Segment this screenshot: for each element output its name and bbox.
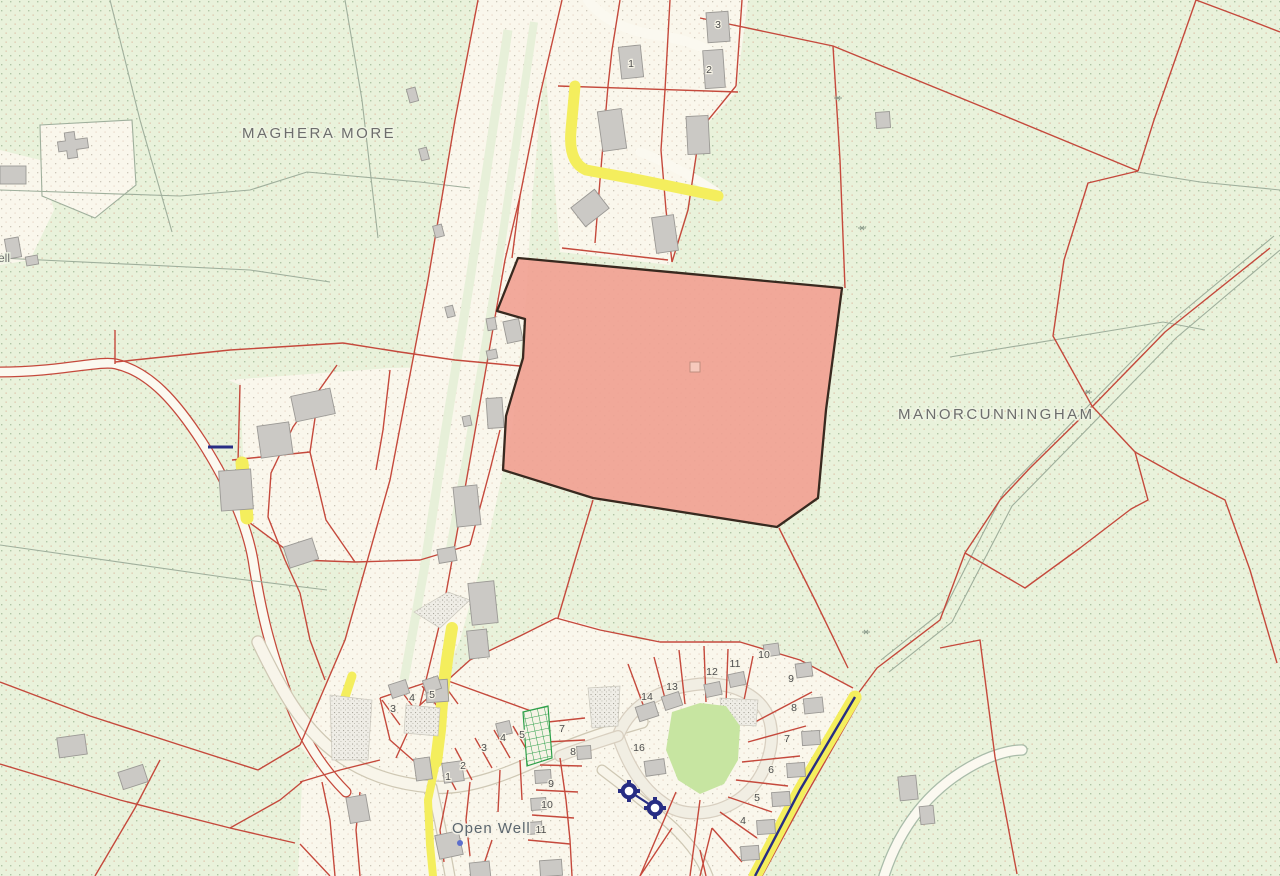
- building: [0, 166, 26, 184]
- building: [875, 112, 890, 129]
- building: [772, 791, 791, 806]
- plot-number: 2: [460, 760, 466, 772]
- well-dot-icon: [457, 840, 463, 846]
- plot-number: 16: [633, 742, 645, 754]
- building: [728, 671, 746, 687]
- map-canvas[interactable]: MAGHERA MORE MANORCUNNINGHAM Open Well e…: [0, 0, 1280, 876]
- plot-number: 4: [409, 692, 415, 704]
- building: [704, 681, 722, 697]
- building: [462, 415, 472, 426]
- building: [539, 859, 562, 876]
- plot-number: 1: [445, 771, 451, 783]
- townland-label-maghera-more: MAGHERA MORE: [242, 125, 396, 142]
- building: [437, 547, 457, 564]
- building: [757, 819, 776, 834]
- plot-number: 5: [429, 689, 435, 701]
- plot-number: 14: [641, 691, 653, 703]
- edge-clipped-well-label: ell: [0, 251, 10, 265]
- building: [467, 629, 490, 659]
- building: [219, 469, 254, 511]
- plot-number: 5: [754, 792, 760, 804]
- plot-number: 7: [784, 733, 790, 745]
- plot-number: 13: [666, 681, 678, 693]
- plot-number: 2: [706, 64, 712, 76]
- plot-number: 10: [541, 799, 553, 811]
- building: [57, 734, 88, 758]
- stippled-yard: [404, 705, 440, 736]
- pump-ring: [649, 802, 662, 815]
- building: [414, 757, 433, 781]
- townland-label-manorcunningham: MANORCUNNINGHAM: [898, 406, 1095, 423]
- building: [486, 397, 504, 428]
- plot-number: 11: [730, 658, 741, 670]
- building: [486, 317, 497, 330]
- building: [346, 794, 370, 823]
- building: [486, 349, 498, 360]
- plot-number: 11: [536, 824, 547, 836]
- plot-number: 8: [570, 746, 576, 758]
- building: [453, 485, 481, 527]
- building: [597, 109, 626, 152]
- open-well-label: Open Well: [452, 820, 531, 837]
- building: [468, 581, 498, 625]
- building: [802, 730, 821, 745]
- building: [469, 861, 491, 876]
- building: [787, 762, 806, 777]
- building: [741, 845, 760, 860]
- plot-number: 4: [740, 815, 746, 827]
- building: [652, 215, 679, 254]
- building: [803, 697, 823, 714]
- stippled-yard: [588, 686, 620, 728]
- hatched-plot: [523, 706, 552, 766]
- building: [577, 746, 592, 760]
- building: [257, 422, 293, 458]
- pump-ring: [623, 785, 636, 798]
- plot-number: 6: [768, 764, 774, 776]
- plot-number: 4: [500, 732, 506, 744]
- plot-number: 3: [715, 19, 721, 31]
- plot-number: 8: [791, 702, 797, 714]
- plot-number: 5: [519, 729, 525, 741]
- parcel-center-marker: [690, 362, 700, 372]
- building: [686, 115, 710, 154]
- building: [644, 759, 666, 777]
- plot-number: 1: [628, 58, 634, 70]
- plot-number: 3: [481, 742, 487, 754]
- plot-number: 3: [390, 703, 396, 715]
- plot-number: 12: [706, 666, 718, 678]
- stippled-yard: [330, 695, 372, 760]
- plot-number: 10: [758, 649, 770, 661]
- building: [795, 662, 813, 678]
- plot-number: 9: [788, 673, 794, 685]
- plot-number: 7: [559, 723, 565, 735]
- plot-number: 9: [548, 778, 554, 790]
- building: [919, 805, 935, 824]
- building: [25, 255, 38, 266]
- building: [898, 775, 918, 801]
